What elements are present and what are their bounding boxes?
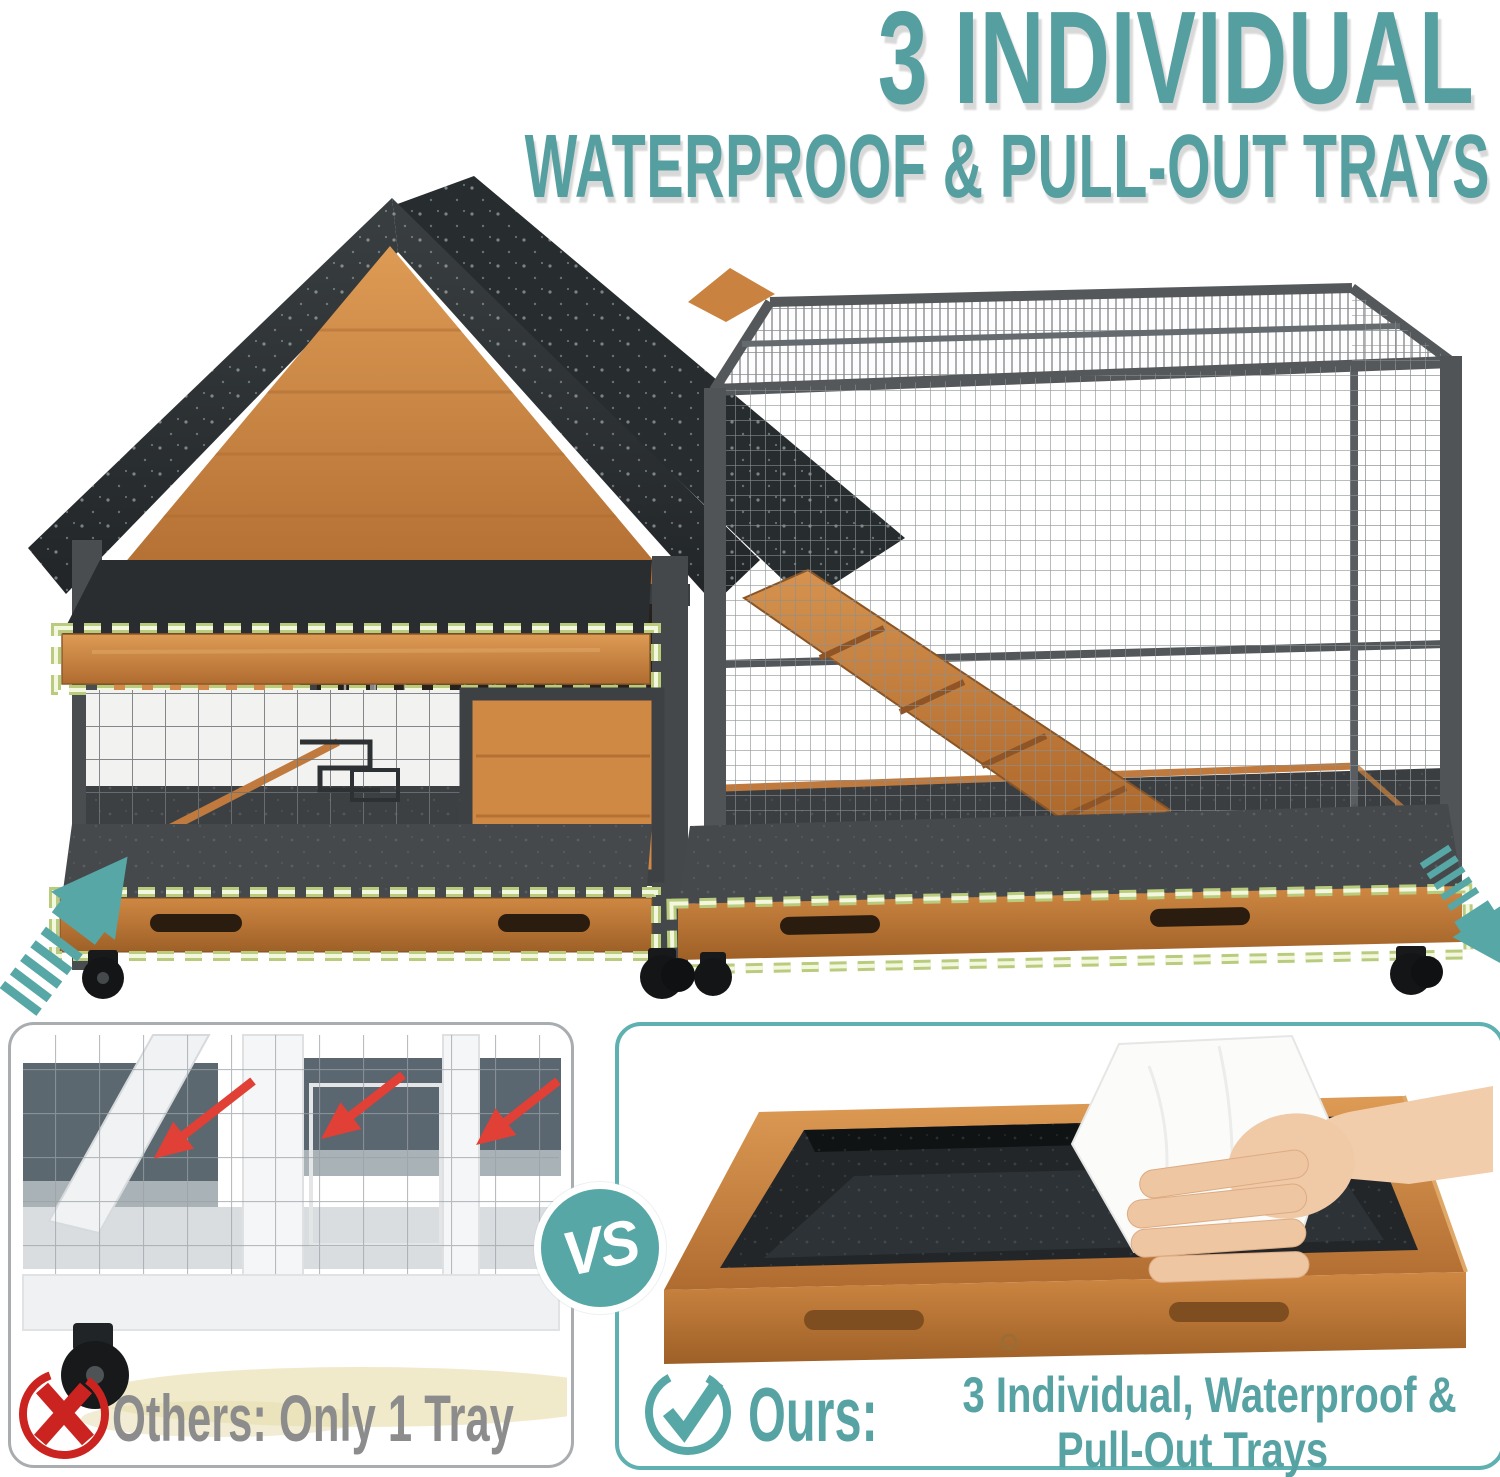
ours-description-line1: 3 Individual, Waterproof & [963, 1368, 1423, 1423]
check-circle-icon [642, 1366, 734, 1458]
tray-handle [1150, 907, 1250, 927]
others-label: Others: Only 1 Tray [112, 1380, 514, 1456]
ours-description: 3 Individual, Waterproof & Pull-Out Tray… [963, 1368, 1423, 1477]
bottom-tray-right [678, 804, 1462, 960]
vs-badge: VS [534, 1182, 666, 1314]
tray-handle [804, 1310, 924, 1330]
vs-label: VS [556, 1206, 644, 1291]
middle-tray [62, 560, 652, 684]
ours-label: Ours: [748, 1372, 878, 1459]
tray-handle [1169, 1302, 1289, 1322]
tray-handle [498, 914, 590, 932]
product-marketing-image: 3 INDIVIDUAL WATERPROOF & PULL-OUT TRAYS [0, 0, 1500, 1477]
ours-description-line2: Pull-Out Trays [963, 1423, 1423, 1477]
tray-handle [780, 915, 880, 935]
tray-handle [150, 914, 242, 932]
x-circle-icon [16, 1366, 112, 1462]
others-hutch [23, 1035, 561, 1330]
